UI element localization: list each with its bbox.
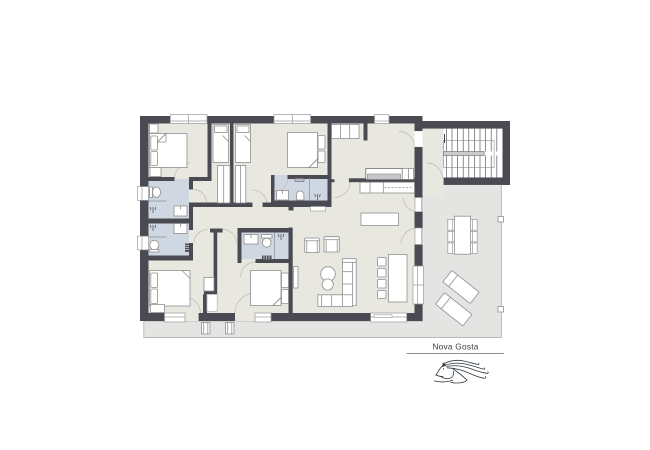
svg-text:Nova Gosta: Nova Gosta (432, 342, 478, 352)
